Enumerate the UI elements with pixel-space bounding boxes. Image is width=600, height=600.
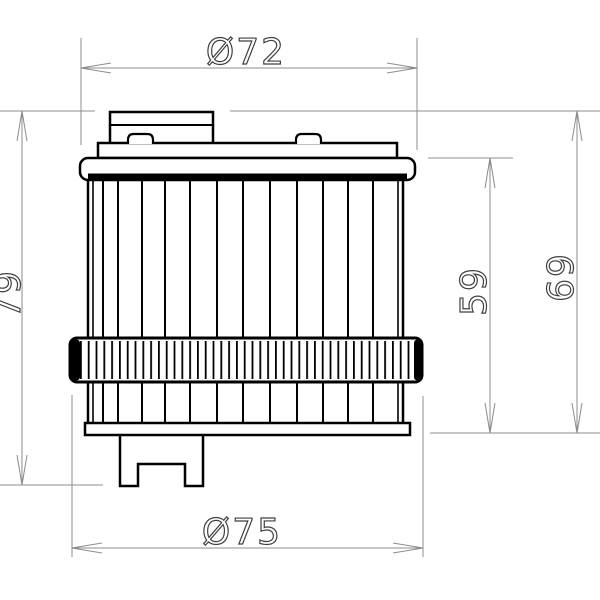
oil-filter-technical-drawing: Ø72 Ø75 79 59 69 — [0, 0, 600, 600]
top-tab — [110, 112, 213, 145]
pleated-element — [88, 180, 403, 424]
bottom-plate — [85, 423, 410, 435]
top-plate — [98, 143, 397, 158]
knurl-edge-right — [414, 340, 423, 381]
dim-label-bottom-diameter: Ø75 — [202, 512, 282, 553]
knurl-hatching — [80, 341, 414, 379]
rivet-bump-left — [128, 134, 153, 144]
dim-label-element-height: 59 — [454, 266, 495, 316]
rivet-bump-right — [296, 134, 321, 144]
dim-label-overall-height: 79 — [0, 269, 29, 319]
dim-label-body-height: 69 — [541, 252, 582, 302]
technical-drawing-page: Ø72 Ø75 79 59 69 — [0, 0, 600, 600]
filter-body — [70, 112, 423, 486]
knurl-edge-left — [71, 340, 80, 381]
dim-label-top-diameter: Ø72 — [206, 32, 286, 73]
